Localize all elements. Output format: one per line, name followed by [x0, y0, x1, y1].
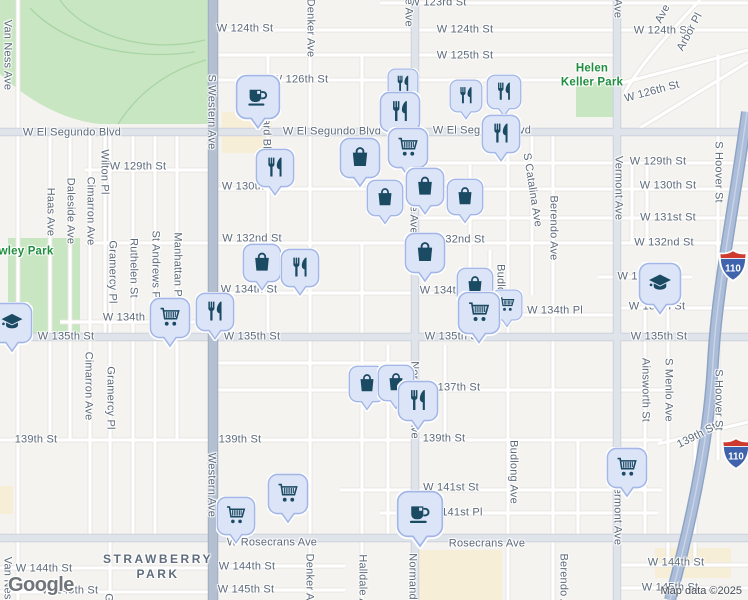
street-label: W 132nd St [634, 237, 693, 250]
street-label: W 124th St [217, 23, 273, 36]
street-label: Cimarron Ave [84, 177, 97, 246]
street-label: Budlong Ave [507, 440, 520, 504]
street-label: S Hoover St [712, 369, 725, 431]
street-label: Haas Ave [44, 188, 57, 236]
svg-text:110: 110 [725, 264, 741, 275]
street-label: Gramercy Pl [102, 593, 115, 600]
interstate-110-shield: 110 [718, 249, 748, 287]
restaurant-marker[interactable] [255, 148, 295, 202]
street-label: Berendo Ave [557, 554, 570, 600]
restaurant-marker[interactable] [280, 248, 320, 302]
shopping-bag-marker[interactable] [405, 167, 445, 221]
street-label: S Hoover St [712, 141, 725, 203]
street-label: W 130th St [640, 180, 696, 193]
street-label: W 144th St [648, 557, 704, 570]
street-label: W 134th [103, 312, 145, 325]
shopping-bag-marker[interactable] [366, 179, 404, 231]
interstate-110-shield: 110 [721, 437, 748, 475]
park-label: Keller Park [561, 76, 623, 89]
coffee-marker[interactable] [235, 74, 281, 135]
street-label: Normandie Ave [406, 553, 419, 600]
street-label: Manhattan Pl [171, 232, 184, 299]
street-label: Normandie Ave [402, 0, 415, 27]
shopping-cart-marker[interactable] [149, 297, 191, 354]
street-label: Rosecrans Ave [449, 538, 525, 551]
street-label: W 145th St [218, 584, 274, 597]
street-label: Gramercy Pl [106, 240, 119, 303]
street-label: St Andrews Pl [149, 230, 162, 301]
street-label: Gramercy Pl [104, 366, 117, 429]
shopping-cart-marker[interactable] [216, 496, 256, 550]
street-label: W 129th St [110, 161, 166, 174]
street-label: Ainsworth St [639, 358, 652, 422]
street-label: W 144th St [219, 561, 275, 574]
street-label: Wilton Pl [98, 149, 111, 194]
park-label: wley Park [0, 245, 53, 258]
street-label: W 135th St [631, 331, 687, 344]
street-label: W 129th St [630, 156, 686, 169]
street-label: W 125th St [437, 50, 493, 63]
restaurant-marker[interactable] [481, 114, 521, 168]
map-canvas[interactable]: W 123rd StW 124th StW 124th StW 124th St… [0, 0, 748, 600]
street-label: S Menlo Ave [662, 358, 675, 422]
street-label: Denker Ave [303, 554, 316, 600]
street-label: Daleside Ave [64, 178, 77, 244]
school-marker[interactable] [638, 262, 682, 321]
street-label: Cimarron Ave [82, 352, 95, 421]
street-label: W 123rd St [409, 0, 466, 9]
shopping-cart-marker[interactable] [606, 447, 648, 504]
street-label: 139th St [219, 434, 262, 447]
restaurant-marker[interactable] [397, 380, 439, 437]
restaurant-marker[interactable] [449, 79, 483, 126]
street-label: Denker Ave [304, 0, 317, 57]
street-label: Vermont Ave [612, 156, 625, 220]
street-label: W 135th St [38, 331, 94, 344]
restaurant-marker[interactable] [195, 292, 235, 346]
street-label: Ruthelen St [127, 238, 140, 298]
street-label: W 134th Pl [527, 305, 583, 318]
street-label: 139th St [15, 434, 58, 447]
park-label: PARK [136, 568, 179, 582]
street-label: Van Ness Ave [1, 20, 14, 90]
park-label: Helen [576, 62, 608, 75]
shopping-bag-marker[interactable] [242, 243, 282, 297]
street-label: W 124th St [437, 24, 493, 37]
street-label: S Western Ave [205, 75, 218, 150]
street-label: Vermont Ave [611, 0, 624, 18]
map-attribution: Map data ©2025 [661, 585, 743, 597]
park-label: STRAWBERRY [103, 553, 213, 567]
street-label: W El Segundo Blvd [23, 127, 121, 140]
street-label: Berendo Ave [547, 196, 560, 261]
school-marker[interactable] [0, 302, 33, 359]
shopping-cart-marker[interactable] [267, 473, 309, 530]
coffee-marker[interactable] [396, 490, 444, 554]
shopping-cart-marker[interactable] [457, 291, 501, 350]
google-logo[interactable]: Google [8, 574, 74, 597]
shopping-bag-marker[interactable] [446, 178, 484, 230]
shopping-bag-marker[interactable] [404, 232, 446, 289]
street-label: Halldale Ave [356, 554, 369, 600]
svg-text:110: 110 [728, 452, 744, 463]
street-label: W 131st St [640, 212, 696, 225]
